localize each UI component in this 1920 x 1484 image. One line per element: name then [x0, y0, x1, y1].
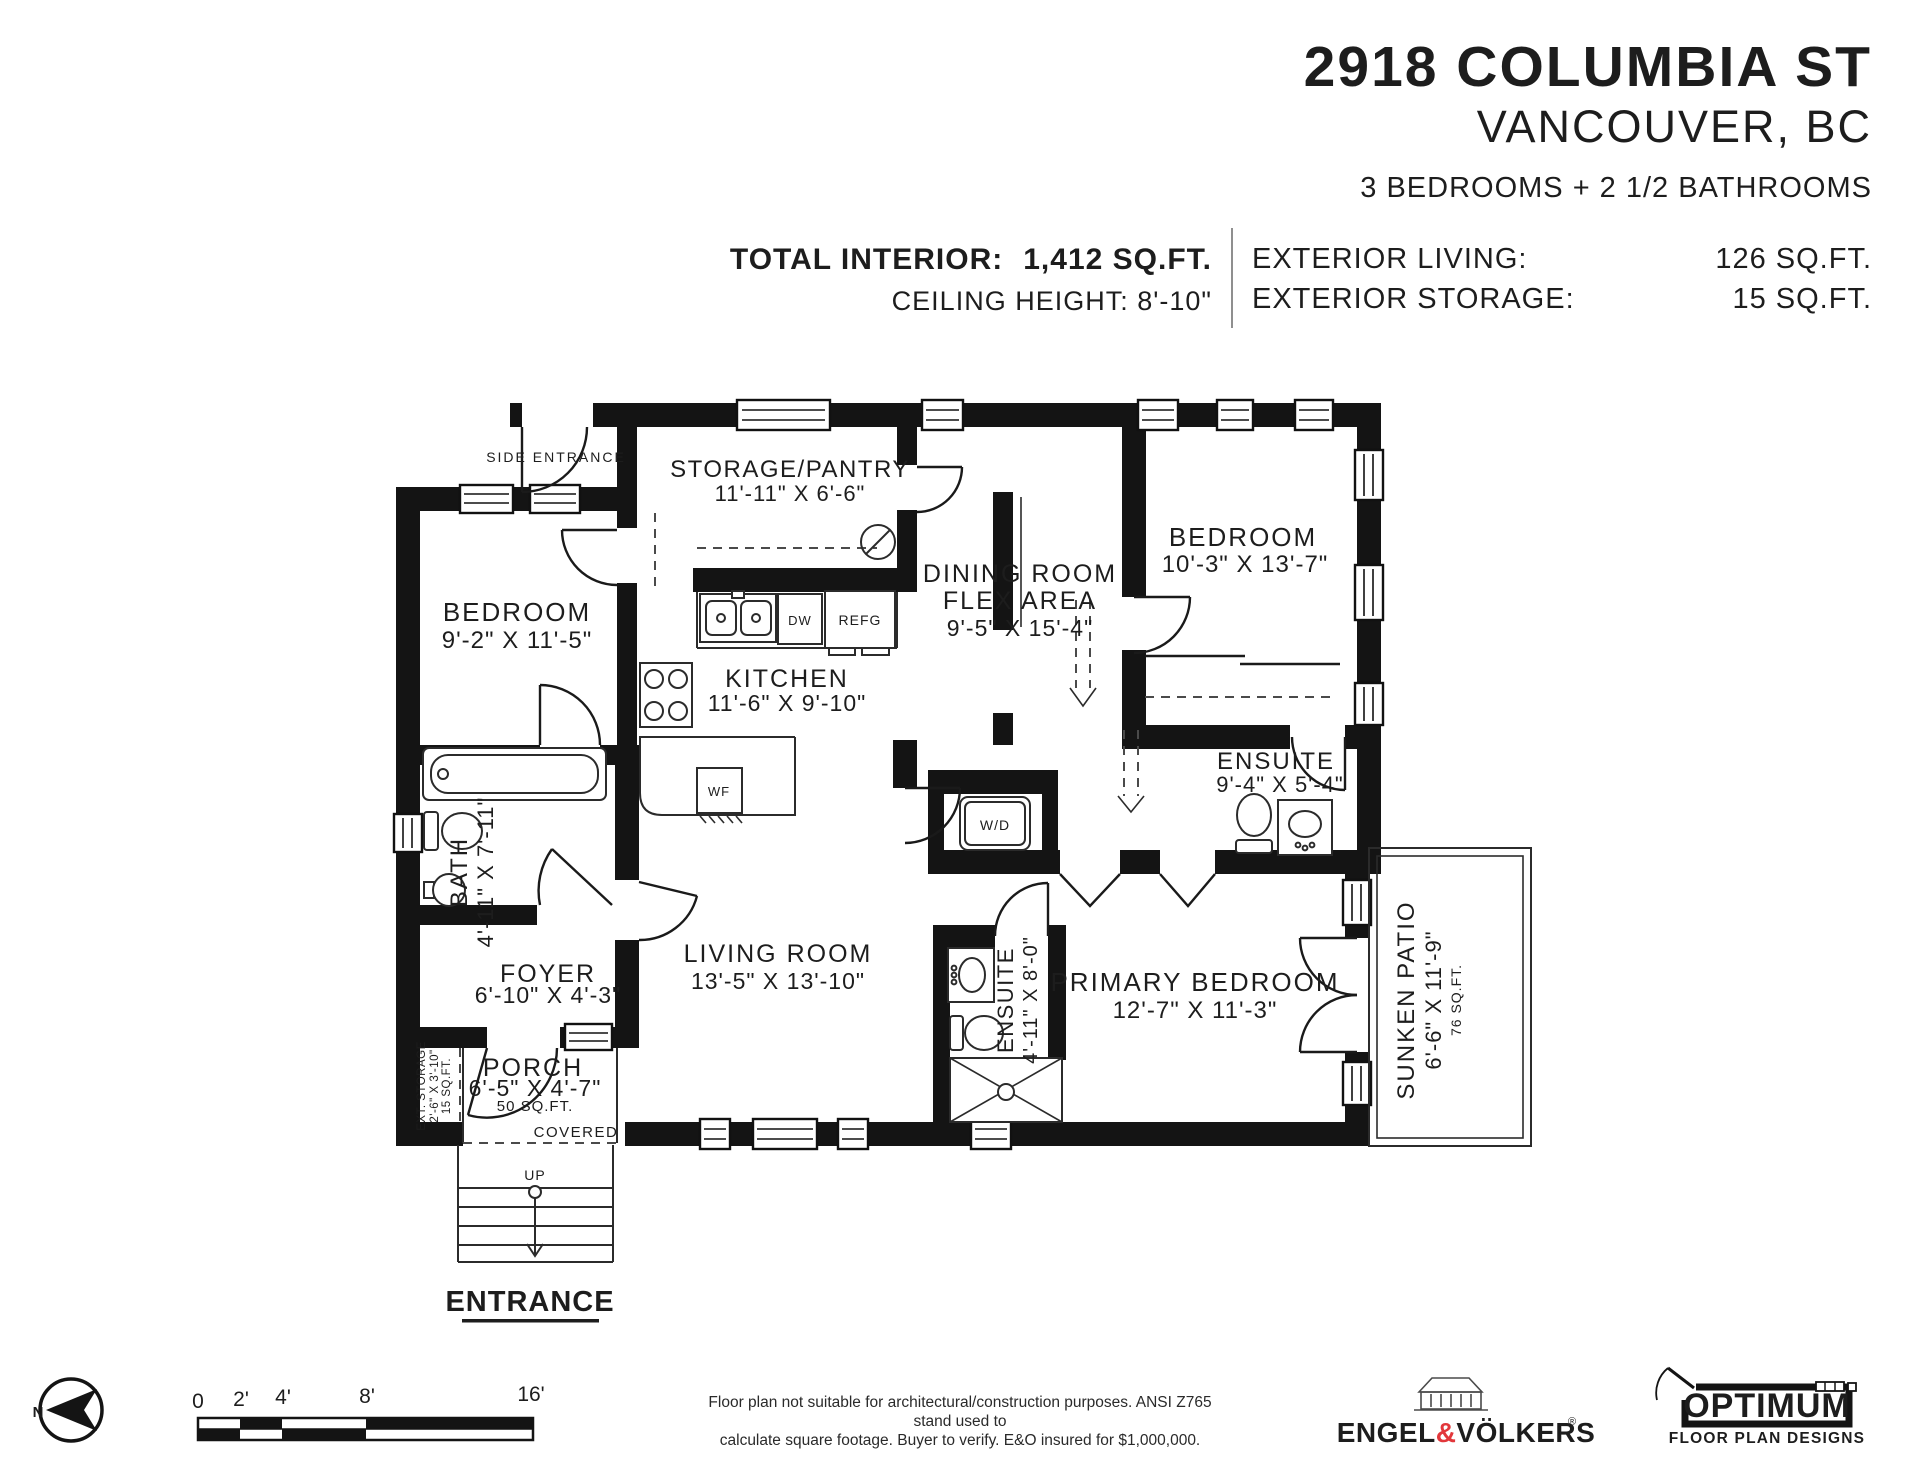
label-bedroomL-dims: 9'-2" X 11'-5" — [442, 627, 593, 654]
scale-8: 8' — [359, 1385, 375, 1408]
floor-plan: SIDE ENTRANCE STORAGE/PANTRY 11'-11" X 6… — [0, 0, 1920, 1484]
label-living-name: LIVING ROOM — [684, 940, 873, 968]
north-letter: N — [33, 1404, 44, 1421]
disclaimer: Floor plan not suitable for architectura… — [697, 1393, 1223, 1450]
label-dining-name2: FLEX AREA — [943, 587, 1097, 615]
label-ensuiteR-name: ENSUITE — [1217, 748, 1335, 775]
label-kitchen-name: KITCHEN — [725, 665, 849, 693]
door-bedroom-right — [1134, 597, 1190, 653]
shower-icon — [950, 1058, 1062, 1122]
door-bifold — [1060, 874, 1215, 906]
door-storage — [917, 467, 962, 512]
label-bedroomR-dims: 10'-3" X 13'-7" — [1162, 551, 1329, 578]
scale-2: 2' — [233, 1388, 249, 1411]
label-primary-dims: 12'-7" X 11'-3" — [1113, 997, 1278, 1024]
window-icon — [971, 1119, 1011, 1149]
room-labels: SIDE ENTRANCE STORAGE/PANTRY 11'-11" X 6… — [416, 449, 1464, 1323]
label-extstorage-3: 15 SQ.FT. — [441, 1058, 453, 1114]
engel-volkers-logo: ENGEL&VÖLKERS ® — [1337, 1378, 1596, 1448]
label-ensuiteR-dims: 9'-4" X 5'-4" — [1216, 772, 1344, 797]
label-foyer-dims: 6'-10" X 4'-3" — [475, 982, 622, 1008]
north-arrow-icon: N — [33, 1379, 102, 1441]
label-patio-name: SUNKEN PATIO — [1393, 900, 1420, 1099]
label-extstorage-1: EXT. STORAGE — [416, 1041, 428, 1131]
label-patio-dims: 6'-6" X 11'-9" — [1421, 930, 1446, 1069]
disclaimer-line-2: calculate square footage. Buyer to verif… — [697, 1431, 1223, 1450]
window-icon — [700, 1119, 730, 1149]
logo-door-arc — [1656, 1368, 1668, 1400]
label-dining-dims: 9'-5" X 15'-4" — [947, 615, 1094, 641]
window-icon — [1355, 565, 1383, 620]
optimum-logo: OPTIMUM FLOOR PLAN DESIGNS — [1656, 1368, 1865, 1447]
bathtub-icon — [423, 748, 606, 800]
toilet-icon — [1236, 794, 1272, 853]
brand-engel: ENGEL — [1337, 1417, 1436, 1448]
villa-icon — [1414, 1378, 1488, 1410]
door-ensuite-primary — [995, 883, 1048, 936]
window-icon — [1343, 1062, 1371, 1105]
label-wd: W/D — [980, 817, 1010, 833]
label-bedroomR-name: BEDROOM — [1169, 522, 1317, 552]
window-icon — [394, 814, 422, 852]
label-bath-dims: 4'-11" X 7'-11" — [473, 797, 498, 948]
label-porch-area: 50 SQ.FT. — [497, 1098, 574, 1115]
brand-amp: & — [1436, 1417, 1457, 1448]
scale-16: 16' — [517, 1383, 544, 1406]
door-bath — [539, 849, 612, 905]
label-living-dims: 13'-5" X 13'-10" — [691, 968, 865, 994]
window-icon — [1138, 400, 1178, 430]
scale-4: 4' — [275, 1386, 291, 1409]
entrance-underline — [462, 1319, 599, 1323]
door-foyer-living — [639, 882, 697, 940]
label-storage-dims: 11'-11" X 6'-6" — [715, 481, 866, 506]
logo-door-leaf — [1668, 1368, 1694, 1388]
window-icon — [922, 400, 963, 430]
label-ensuiteP-dims: 4'-11" X 8'-0" — [1020, 936, 1042, 1064]
brand-reg: ® — [1568, 1416, 1576, 1428]
floorplan-page: 2918 COLUMBIA ST VANCOUVER, BC 3 BEDROOM… — [0, 0, 1920, 1484]
label-up: UP — [524, 1167, 545, 1183]
label-side-entrance: SIDE ENTRANCE — [486, 449, 626, 465]
label-dining-name: DINING ROOM — [923, 560, 1117, 588]
label-patio-area: 76 SQ.FT. — [1448, 964, 1464, 1036]
door-bedroom-left — [562, 530, 617, 585]
window-icon — [1217, 400, 1253, 430]
label-entrance: ENTRANCE — [445, 1286, 614, 1318]
label-extstorage-2: 2'-6" X 3'-10" — [429, 1049, 441, 1122]
window-icon — [1355, 683, 1383, 725]
window-icon — [737, 400, 830, 430]
kitchen-sink-icon — [700, 591, 776, 642]
label-covered: COVERED — [534, 1124, 619, 1141]
window-icon — [1295, 400, 1333, 430]
window-icon — [1355, 450, 1383, 500]
window-icon — [1343, 880, 1371, 925]
stairs — [458, 1145, 613, 1262]
optimum-title: OPTIMUM — [1683, 1387, 1851, 1425]
label-refg: REFG — [839, 612, 882, 628]
window-icon — [565, 1024, 612, 1050]
window-icon — [753, 1119, 817, 1149]
vanity-icon — [948, 948, 994, 1002]
door-sliding — [1145, 656, 1340, 664]
window-icon — [460, 485, 513, 513]
label-kitchen-dims: 11'-6" X 9'-10" — [708, 690, 867, 716]
window-icon — [838, 1119, 868, 1149]
scale-bar: 0 2' 4' 8' 16' — [192, 1383, 545, 1440]
door-bath-north — [540, 685, 600, 745]
label-wf: WF — [708, 784, 730, 799]
scale-0: 0 — [192, 1390, 204, 1413]
label-bedroomL-name: BEDROOM — [443, 597, 591, 627]
label-storage-name: STORAGE/PANTRY — [670, 456, 910, 483]
stove-icon — [640, 663, 692, 727]
label-ensuiteP-name: ENSUITE — [993, 947, 1018, 1053]
label-primary-name: PRIMARY BEDROOM — [1050, 967, 1339, 997]
label-bath-name: BATH — [446, 837, 473, 907]
disclaimer-line-1: Floor plan not suitable for architectura… — [697, 1393, 1223, 1431]
vanity-icon — [1278, 800, 1332, 855]
optimum-subtitle: FLOOR PLAN DESIGNS — [1669, 1430, 1865, 1447]
label-dw: DW — [788, 613, 812, 628]
svg-text:ENGEL&VÖLKERS: ENGEL&VÖLKERS — [1337, 1417, 1596, 1448]
